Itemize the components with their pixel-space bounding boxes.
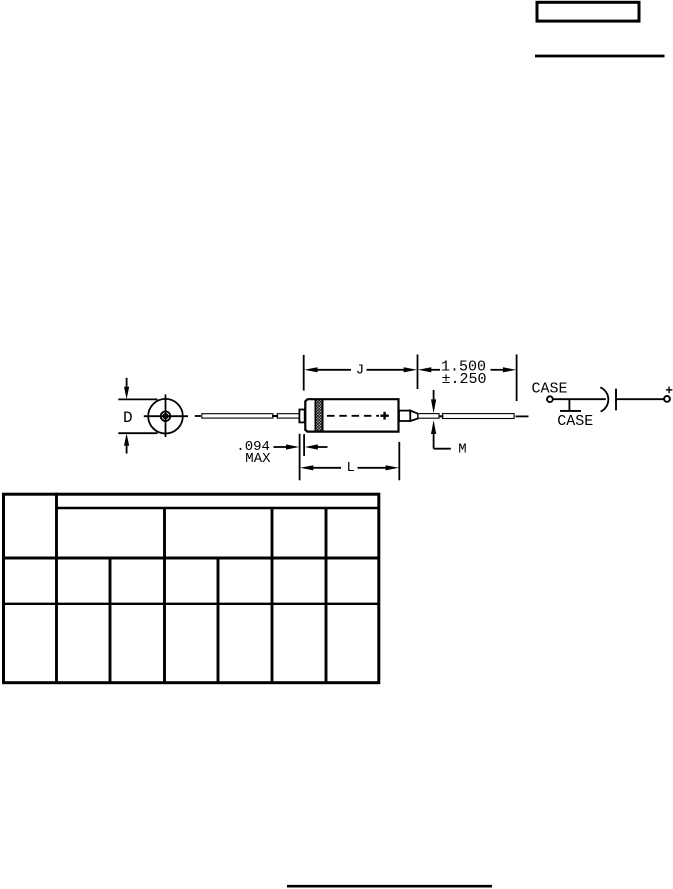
svg-text:D: D — [123, 409, 133, 427]
svg-text:J: J — [356, 363, 364, 379]
svg-text:L: L — [347, 460, 355, 476]
svg-text:CASE: CASE — [532, 380, 568, 397]
svg-text:MAX: MAX — [245, 451, 271, 467]
svg-text:±.250: ±.250 — [442, 371, 487, 388]
svg-text:CASE: CASE — [557, 413, 593, 430]
svg-text:M: M — [458, 442, 466, 458]
